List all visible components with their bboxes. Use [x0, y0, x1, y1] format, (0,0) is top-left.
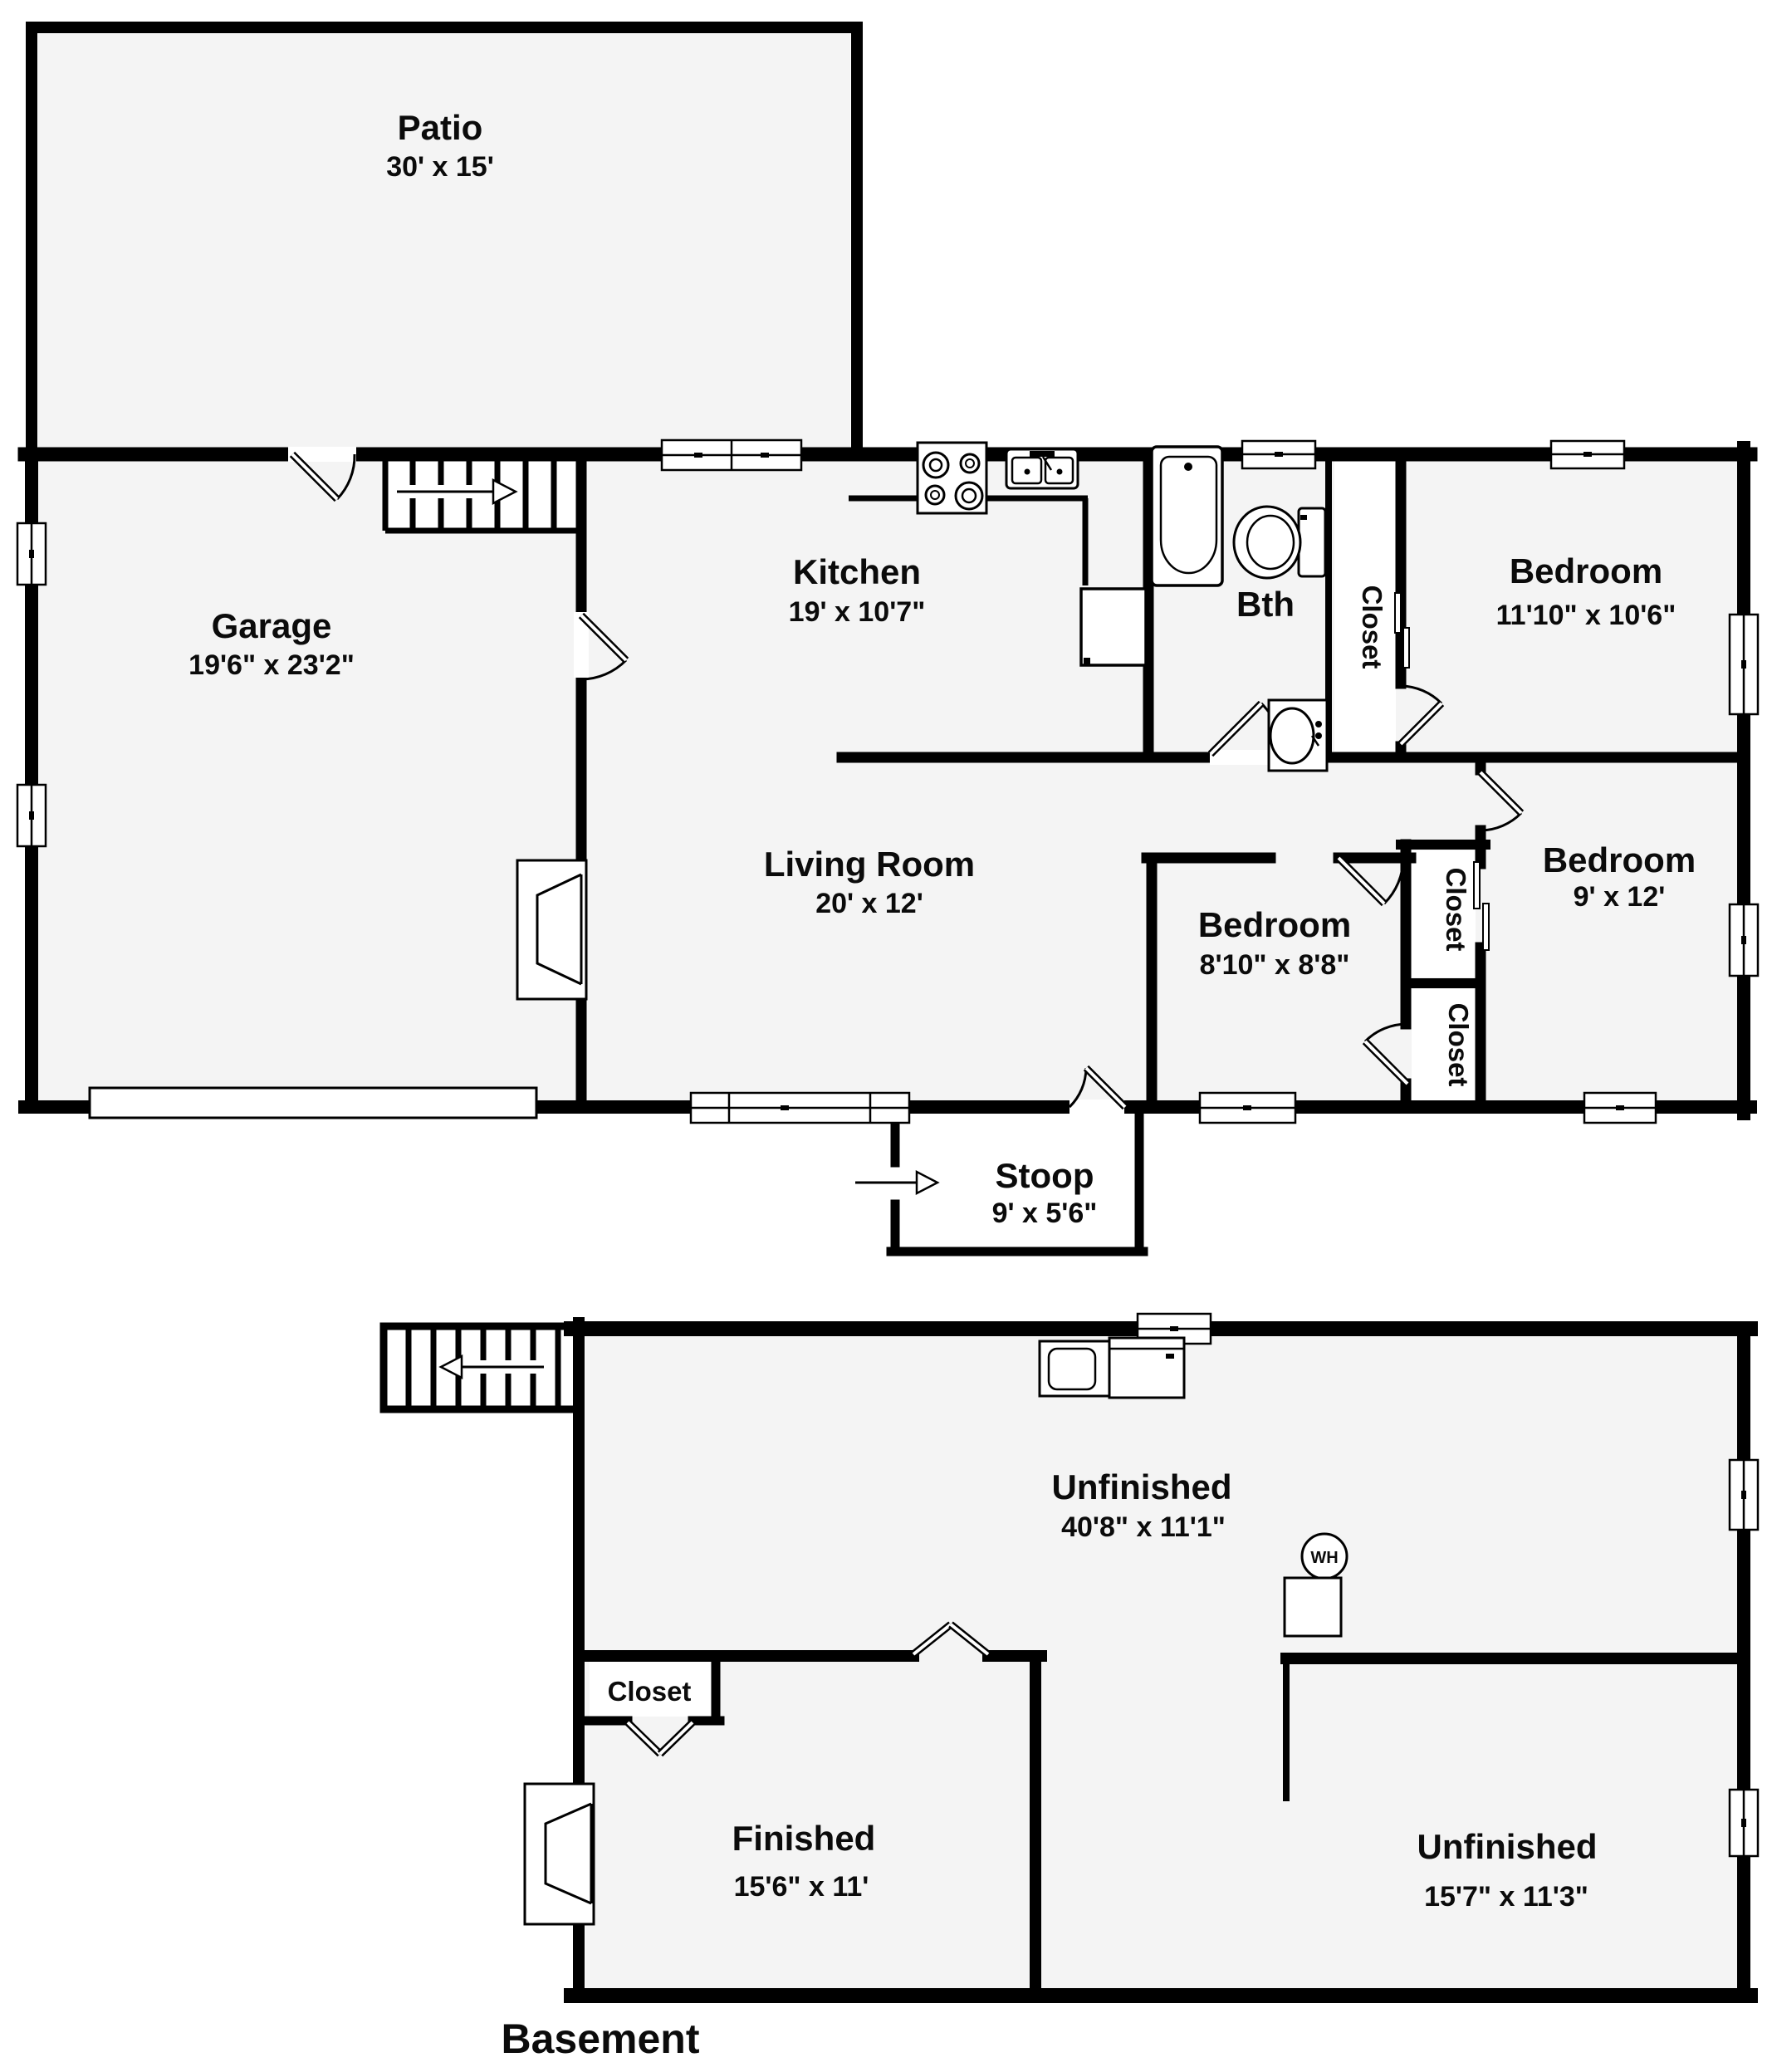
finished-dims: 15'6" x 11' — [734, 1871, 869, 1903]
kitchen-dims: 19' x 10'7" — [789, 596, 926, 628]
bath-window — [1242, 441, 1315, 468]
patio-dims: 30' x 15' — [386, 151, 494, 183]
basement-right-window-2 — [1730, 1790, 1758, 1856]
bath-sink-icon — [1269, 700, 1327, 771]
floor-title: Basement — [502, 2016, 700, 2062]
tub-icon — [1152, 447, 1222, 585]
closet-upper-label: Closet — [1441, 868, 1471, 952]
basement-right-window-1 — [1730, 1460, 1758, 1530]
main-floor: Patio 30' x 15' Garage 19'6" x 23'2" Kit… — [17, 27, 1758, 1252]
stove-icon — [918, 443, 986, 513]
finished-label: Finished — [732, 1819, 876, 1858]
bedroom-top-side-window — [1730, 615, 1758, 714]
kitchen-sink-icon — [1006, 449, 1078, 488]
fireplace-icon — [517, 860, 586, 999]
bedroom-right-window — [1584, 1093, 1656, 1123]
water-heater-label: WH — [1310, 1549, 1338, 1567]
basement-fireplace-icon — [525, 1784, 594, 1924]
bedroom-right-side-window — [1730, 904, 1758, 976]
living-room-dims: 20' x 12' — [815, 888, 923, 919]
living-room-label: Living Room — [764, 845, 975, 884]
fridge-icon — [1081, 589, 1146, 665]
garage-door — [90, 1088, 536, 1118]
unfinished-main-dims: 40'8" x 11'1" — [1061, 1511, 1226, 1543]
garage-window-1 — [17, 523, 46, 585]
toilet-icon — [1234, 507, 1325, 578]
bedroom-right-dims: 9' x 12' — [1574, 881, 1666, 913]
water-heater-icon: WH — [1302, 1534, 1347, 1579]
bedroom-top-dims: 11'10" x 10'6" — [1496, 600, 1676, 631]
closet-lower-label: Closet — [1443, 1003, 1474, 1087]
dryer-icon — [1109, 1338, 1184, 1398]
kitchen-window — [662, 440, 801, 470]
bedroom-middle-dims: 8'10" x 8'8" — [1200, 949, 1350, 981]
floor-plan: Patio 30' x 15' Garage 19'6" x 23'2" Kit… — [0, 0, 1767, 2072]
bedroom-middle-window — [1200, 1093, 1295, 1123]
living-room-window — [691, 1093, 909, 1123]
stoop-dims: 9' x 5'6" — [992, 1198, 1098, 1229]
bedroom-top-window — [1551, 441, 1624, 468]
unfinished-main-label: Unfinished — [1052, 1467, 1232, 1506]
stoop-label: Stoop — [996, 1156, 1094, 1195]
unfinished-lower-dims: 15'7" x 11'3" — [1424, 1881, 1588, 1913]
basement: WH Unfinished 40'8" x 11'1" Closet Finis… — [384, 1314, 1758, 2062]
bath-closet-label: Closet — [1357, 585, 1388, 669]
bath-label: Bth — [1236, 585, 1295, 624]
bedroom-top-label: Bedroom — [1510, 551, 1662, 590]
garage-window-2 — [17, 785, 46, 846]
entry-arrow-icon — [851, 1172, 937, 1193]
bedroom-middle-label: Bedroom — [1198, 905, 1351, 944]
kitchen-label: Kitchen — [793, 552, 921, 591]
patio-floor — [38, 34, 850, 449]
patio-label: Patio — [398, 108, 483, 147]
basement-closet-label: Closet — [608, 1676, 692, 1707]
washer-icon — [1040, 1341, 1109, 1396]
garage-dims: 19'6" x 23'2" — [188, 649, 355, 681]
bedroom-right-label: Bedroom — [1543, 840, 1696, 879]
garage-label: Garage — [212, 606, 332, 645]
furnace-icon — [1285, 1578, 1341, 1636]
unfinished-lower-label: Unfinished — [1417, 1827, 1598, 1866]
